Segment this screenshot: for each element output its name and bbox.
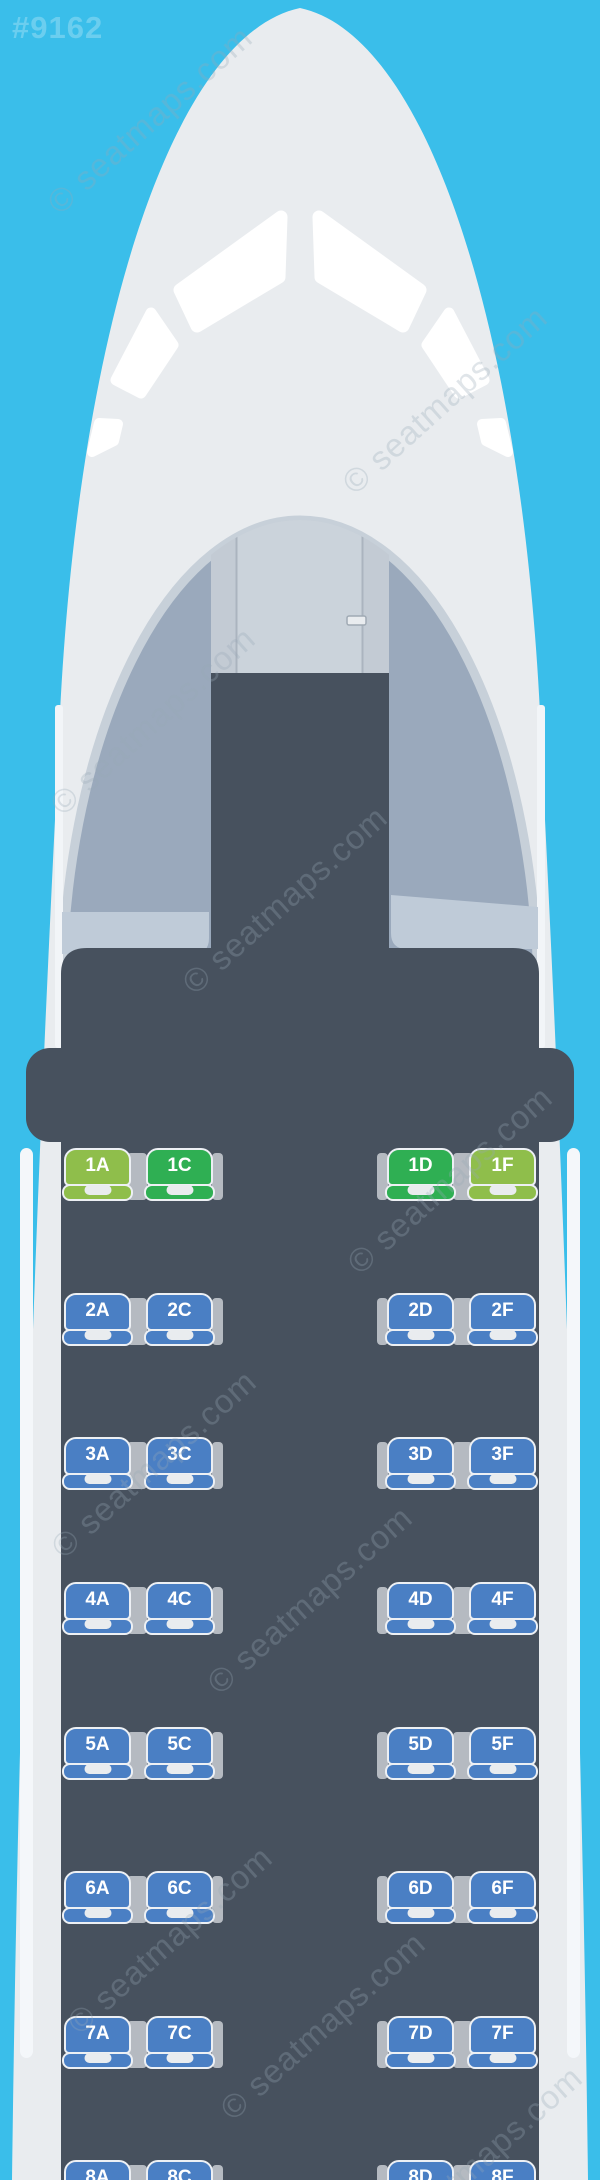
seat-5D[interactable]: 5D xyxy=(387,1727,454,1780)
seat-label: 5F xyxy=(469,1727,536,1763)
seat-label: 2F xyxy=(469,1293,536,1329)
seat-6F[interactable]: 6F xyxy=(469,1871,536,1924)
seat-headrest-notch xyxy=(489,1474,516,1484)
seat-label: 6C xyxy=(146,1871,213,1907)
seat-label: 1F xyxy=(469,1148,536,1184)
seat-2D[interactable]: 2D xyxy=(387,1293,454,1346)
seat-label: 8D xyxy=(387,2160,454,2180)
seat-label: 6D xyxy=(387,1871,454,1907)
seat-label: 4F xyxy=(469,1582,536,1618)
seat-label: 6F xyxy=(469,1871,536,1907)
seat-1D[interactable]: 1D xyxy=(387,1148,454,1201)
seat-3A[interactable]: 3A xyxy=(64,1437,131,1490)
seat-label: 4D xyxy=(387,1582,454,1618)
seat-1F[interactable]: 1F xyxy=(469,1148,536,1201)
seat-headrest-notch xyxy=(84,1764,111,1774)
seat-headrest-notch xyxy=(166,1619,193,1629)
seat-8A[interactable]: 8A xyxy=(64,2160,131,2180)
seat-headrest-notch xyxy=(84,1474,111,1484)
seat-label: 2A xyxy=(64,1293,131,1329)
seat-6D[interactable]: 6D xyxy=(387,1871,454,1924)
seat-8F[interactable]: 8F xyxy=(469,2160,536,2180)
seat-label: 3A xyxy=(64,1437,131,1473)
seat-headrest-notch xyxy=(166,1185,193,1195)
seat-headrest-notch xyxy=(489,2053,516,2063)
seat-6C[interactable]: 6C xyxy=(146,1871,213,1924)
seat-4F[interactable]: 4F xyxy=(469,1582,536,1635)
seat-label: 8A xyxy=(64,2160,131,2180)
seatmap-canvas: 1A1C1D1F2A2C2D2F3A3C3D3F4A4C4D4F5A5C5D5F… xyxy=(0,0,600,2180)
seat-headrest-notch xyxy=(489,1330,516,1340)
seat-headrest-notch xyxy=(489,1619,516,1629)
seat-headrest-notch xyxy=(489,1185,516,1195)
seat-label: 7A xyxy=(64,2016,131,2052)
seat-5A[interactable]: 5A xyxy=(64,1727,131,1780)
seat-3F[interactable]: 3F xyxy=(469,1437,536,1490)
seat-label: 5C xyxy=(146,1727,213,1763)
seat-4A[interactable]: 4A xyxy=(64,1582,131,1635)
seat-headrest-notch xyxy=(407,1474,434,1484)
seat-2F[interactable]: 2F xyxy=(469,1293,536,1346)
seat-map: 1A1C1D1F2A2C2D2F3A3C3D3F4A4C4D4F5A5C5D5F… xyxy=(0,0,600,2180)
seat-label: 5D xyxy=(387,1727,454,1763)
seat-headrest-notch xyxy=(166,1908,193,1918)
seat-8D[interactable]: 8D xyxy=(387,2160,454,2180)
seat-headrest-notch xyxy=(166,2053,193,2063)
seat-4C[interactable]: 4C xyxy=(146,1582,213,1635)
seat-headrest-notch xyxy=(166,1330,193,1340)
seat-headrest-notch xyxy=(166,1764,193,1774)
seat-headrest-notch xyxy=(84,2053,111,2063)
seat-headrest-notch xyxy=(84,1330,111,1340)
seat-5C[interactable]: 5C xyxy=(146,1727,213,1780)
seat-headrest-notch xyxy=(407,1185,434,1195)
seat-label: 4A xyxy=(64,1582,131,1618)
seat-headrest-notch xyxy=(84,1908,111,1918)
seat-headrest-notch xyxy=(84,1619,111,1629)
seat-label: 7D xyxy=(387,2016,454,2052)
seat-2A[interactable]: 2A xyxy=(64,1293,131,1346)
seat-label: 3F xyxy=(469,1437,536,1473)
seat-label: 8C xyxy=(146,2160,213,2180)
seat-3C[interactable]: 3C xyxy=(146,1437,213,1490)
seat-6A[interactable]: 6A xyxy=(64,1871,131,1924)
seat-headrest-notch xyxy=(489,1908,516,1918)
seat-headrest-notch xyxy=(407,2053,434,2063)
seat-5F[interactable]: 5F xyxy=(469,1727,536,1780)
seat-headrest-notch xyxy=(489,1764,516,1774)
seat-1A[interactable]: 1A xyxy=(64,1148,131,1201)
seat-7A[interactable]: 7A xyxy=(64,2016,131,2069)
seat-7D[interactable]: 7D xyxy=(387,2016,454,2069)
seat-label: 7F xyxy=(469,2016,536,2052)
seat-2C[interactable]: 2C xyxy=(146,1293,213,1346)
seat-label: 3C xyxy=(146,1437,213,1473)
map-id-label: #9162 xyxy=(12,10,103,46)
seat-label: 8F xyxy=(469,2160,536,2180)
seat-1C[interactable]: 1C xyxy=(146,1148,213,1201)
seat-8C[interactable]: 8C xyxy=(146,2160,213,2180)
seat-headrest-notch xyxy=(407,1764,434,1774)
seat-label: 1C xyxy=(146,1148,213,1184)
seat-7F[interactable]: 7F xyxy=(469,2016,536,2069)
seat-headrest-notch xyxy=(84,1185,111,1195)
seat-label: 1D xyxy=(387,1148,454,1184)
seat-headrest-notch xyxy=(407,1908,434,1918)
seat-headrest-notch xyxy=(407,1619,434,1629)
armrest xyxy=(212,2165,223,2180)
seat-headrest-notch xyxy=(407,1330,434,1340)
seat-label: 3D xyxy=(387,1437,454,1473)
seat-7C[interactable]: 7C xyxy=(146,2016,213,2069)
seat-label: 4C xyxy=(146,1582,213,1618)
seat-label: 7C xyxy=(146,2016,213,2052)
seat-3D[interactable]: 3D xyxy=(387,1437,454,1490)
seat-label: 5A xyxy=(64,1727,131,1763)
seat-label: 2C xyxy=(146,1293,213,1329)
seat-label: 6A xyxy=(64,1871,131,1907)
seat-label: 2D xyxy=(387,1293,454,1329)
seat-label: 1A xyxy=(64,1148,131,1184)
seat-headrest-notch xyxy=(166,1474,193,1484)
seat-4D[interactable]: 4D xyxy=(387,1582,454,1635)
